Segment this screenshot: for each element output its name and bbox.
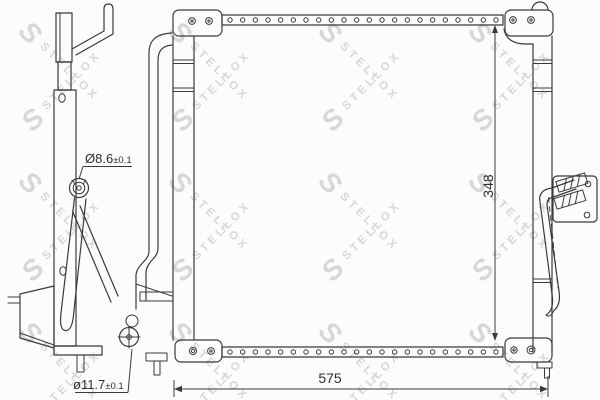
technical-drawing-page: S STELLOX S STELLOX [0,0,600,400]
condenser-technical-drawing: S STELLOX S STELLOX [0,0,600,400]
width-dimension-label: 575 [318,370,342,386]
watermark-layer [0,0,600,400]
height-dimension-label: 348 [480,174,496,198]
